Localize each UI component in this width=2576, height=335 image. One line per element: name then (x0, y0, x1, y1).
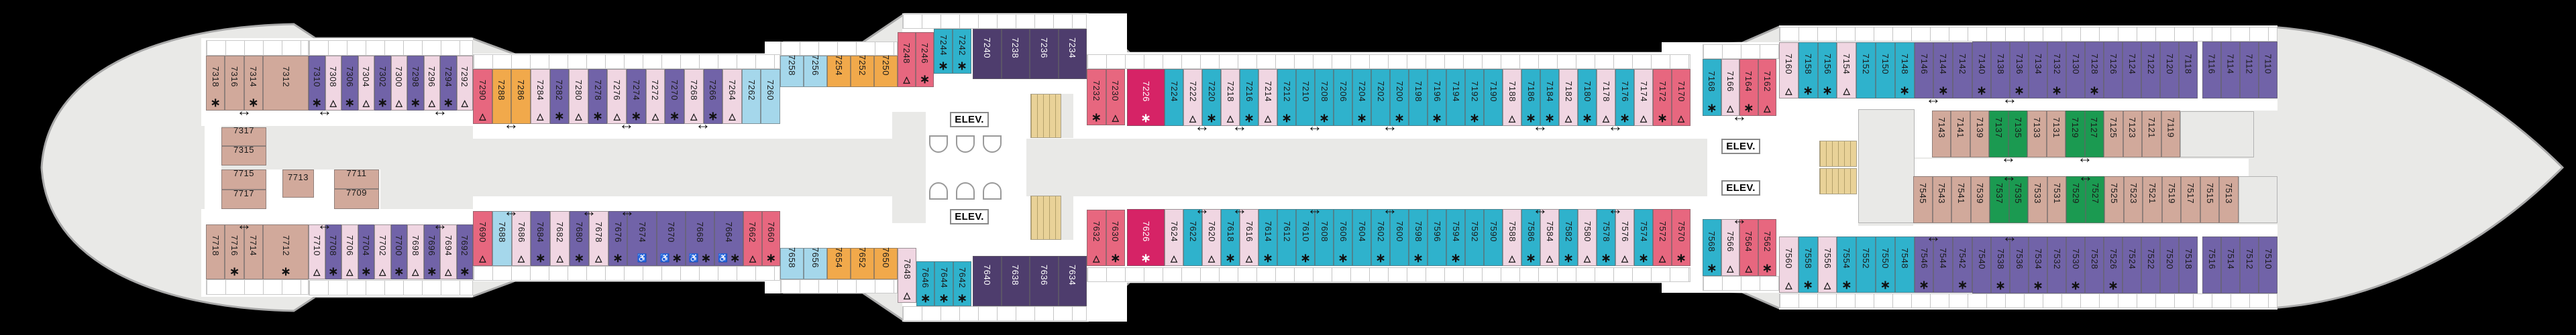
balcony-strip (309, 40, 473, 56)
cabin-number: 7668 (695, 222, 705, 243)
cabin-marks: ∗ (1522, 253, 1540, 265)
cabin-7124[interactable]: 7124 (2123, 42, 2141, 98)
cabin-marks: ∗ (1799, 279, 1817, 292)
cabin-7606[interactable]: 7606∗ (1334, 209, 1352, 266)
cabin-7638[interactable]: 7638 (1002, 256, 1030, 306)
cabin-marks: ∗ (1107, 253, 1125, 265)
cabin-marks: ♿∗ (657, 253, 685, 265)
cabin-7634[interactable]: 7634 (1059, 256, 1087, 306)
cabin-7588[interactable]: 7588△ (1503, 209, 1521, 266)
cabin-7522[interactable]: 7522 (2141, 237, 2160, 293)
cabin-7132[interactable]: 7132∗ (2047, 42, 2066, 98)
cabin-7596[interactable]: 7596 (1428, 209, 1446, 266)
cabin-7652[interactable]: 7652 (851, 248, 874, 279)
cabin-7122[interactable]: 7122 (2141, 42, 2160, 98)
connecting-rooms-arrow: ↔ (1307, 205, 1323, 213)
cabin-7682[interactable]: 7682△ (550, 211, 570, 266)
cabin-7206[interactable]: 7206 (1334, 69, 1352, 126)
cabin-7298[interactable]: 7298∗ (407, 56, 424, 111)
cabin-7141[interactable]: 7141 (1951, 111, 1970, 157)
cabin-marks (335, 196, 378, 208)
triangle-icon: △ (1746, 264, 1752, 273)
cabin-7280[interactable]: 7280△ (569, 69, 588, 124)
cabin-7524[interactable]: 7524 (2123, 237, 2141, 293)
cabin-marks: △ (375, 266, 390, 279)
triangle-icon: △ (904, 75, 910, 84)
cabin-7182[interactable]: 7182△ (1559, 69, 1578, 126)
cabin-7690[interactable]: 7690△ (473, 211, 492, 266)
cabin-number: 7524 (2127, 249, 2137, 269)
cabin-marks (283, 184, 313, 197)
cabin-marks: ∗ (264, 266, 308, 279)
cabin-7552[interactable]: 7552 (1856, 237, 1876, 293)
cabin-7660[interactable]: 7660∗ (762, 211, 780, 266)
cabin-number: 7680 (574, 222, 584, 243)
cabin-number: 7520 (2165, 249, 2175, 269)
cabin-7612[interactable]: 7612 (1277, 209, 1296, 266)
cabin-marks: ∗ (1128, 113, 1164, 125)
cabin-7317[interactable]: 7317 (221, 127, 266, 146)
cabin-7630[interactable]: 7630∗ (1106, 210, 1126, 266)
cabin-7194[interactable]: 7194 (1446, 69, 1465, 126)
cabin-marks: ∗ (531, 253, 549, 265)
cabin-7110[interactable]: 7110 (2259, 42, 2277, 98)
cabin-7123[interactable]: 7123 (2123, 111, 2142, 157)
cabin-7172[interactable]: 7172∗ (1653, 69, 1672, 126)
cabin-7656[interactable]: 7656 (804, 248, 827, 279)
cabin-number: 7510 (2263, 249, 2273, 269)
cabin-7519[interactable]: 7519 (2162, 176, 2182, 223)
cabin-marks (2203, 280, 2220, 293)
cabin-7540[interactable]: 7540 (1972, 237, 1991, 293)
cabin-7232[interactable]: 7232∗ (1087, 69, 1106, 125)
cabin-number: 7182 (1564, 81, 1574, 102)
cabin-7526[interactable]: 7526∗ (2104, 237, 2123, 293)
cabin-number: 7129 (2070, 117, 2080, 138)
cabin-7252[interactable]: 7252 (851, 56, 874, 87)
elevator-car-icon (929, 182, 948, 200)
cabin-7642[interactable]: 7642∗ (953, 261, 971, 306)
cabin-7692[interactable]: 7692∗ (457, 224, 474, 279)
cabin-7230[interactable]: 7230△ (1106, 69, 1126, 125)
cabin-number: 7716 (229, 235, 239, 256)
cabin-marks (1952, 210, 1970, 222)
cabin-7658[interactable]: 7658 (780, 248, 804, 279)
cabin-7256[interactable]: 7256 (804, 56, 827, 87)
cabin-7718[interactable]: 7718 (206, 224, 225, 279)
cabin-number: 7240 (982, 38, 992, 58)
cabin-7282[interactable]: 7282∗ (550, 69, 570, 124)
cabin-7654[interactable]: 7654 (827, 248, 851, 279)
balcony-strip (473, 266, 780, 281)
cabin-7116[interactable]: 7116 (2202, 42, 2221, 98)
cabin-7174[interactable]: 7174△ (1634, 69, 1653, 126)
cabin-7521[interactable]: 7521 (2143, 176, 2162, 223)
cabin-7518[interactable]: 7518 (2179, 237, 2198, 293)
cabin-7542[interactable]: 7542∗ (1953, 237, 1972, 293)
cabin-7246[interactable]: 7246∗ (916, 32, 934, 87)
cabin-7150[interactable]: 7150 (1876, 42, 1895, 98)
star-icon: ∗ (612, 255, 623, 261)
cabin-7556[interactable]: 7556△ (1818, 237, 1837, 293)
connecting-rooms-arrow: ↔ (620, 207, 635, 215)
cabin-7224[interactable]: 7224 (1165, 69, 1183, 126)
cabin-marks (1165, 113, 1183, 125)
cabin-marks (2162, 144, 2180, 157)
cabin-7582[interactable]: 7582∗ (1559, 209, 1578, 266)
cabin-7190[interactable]: 7190 (1484, 69, 1503, 126)
cabin-7128[interactable]: 7128∗ (2085, 42, 2104, 98)
cabin-number: 7516 (2207, 249, 2217, 269)
cabin-7272[interactable]: 7272△ (646, 69, 665, 124)
cabin-7156[interactable]: 7156∗ (1818, 42, 1837, 98)
cabin-7315[interactable]: 7315 (221, 146, 266, 165)
cabin-number: 7202 (1376, 81, 1386, 102)
cabin-number: 7254 (834, 55, 844, 76)
cabin-7545[interactable]: 7545 (1913, 176, 1933, 223)
cabin-7528[interactable]: 7528 (2085, 237, 2104, 293)
corridor-area (205, 126, 221, 209)
cabin-7112[interactable]: 7112 (2240, 42, 2259, 98)
star-icon: ∗ (535, 255, 545, 261)
cabin-7626[interactable]: 7626∗ (1127, 209, 1165, 266)
cabin-7292[interactable]: 7292△ (457, 56, 474, 111)
cabin-7160[interactable]: 7160△ (1779, 42, 1799, 98)
cabin-7570[interactable]: 7570∗ (1672, 209, 1690, 266)
cabin-number: 7658 (787, 247, 797, 268)
cabin-7670[interactable]: 7670♿∗ (657, 211, 686, 266)
star-icon: ∗ (766, 255, 776, 261)
triangle-icon: △ (518, 254, 525, 263)
cabin-7664[interactable]: 7664♿∗ (714, 211, 743, 266)
cabin-marks (1184, 253, 1201, 265)
cabin-number: 7513 (2224, 183, 2234, 204)
cabin-number: 7274 (631, 80, 641, 100)
cabin-number: 7262 (747, 80, 757, 100)
cabin-7640[interactable]: 7640 (973, 256, 1002, 306)
cabin-7543[interactable]: 7543 (1933, 176, 1952, 223)
cabin-7214[interactable]: 7214△ (1258, 69, 1277, 126)
cabin-number: 7116 (2207, 54, 2217, 74)
cabin-7170[interactable]: 7170△ (1672, 69, 1690, 126)
cabin-7248[interactable]: 7248△ (898, 32, 916, 87)
cabin-7646[interactable]: 7646∗ (916, 261, 934, 306)
cabin-7533[interactable]: 7533 (2028, 176, 2047, 223)
balcony-strip (1087, 267, 1690, 282)
cabin-7510[interactable]: 7510 (2259, 237, 2277, 293)
cabin-7196[interactable]: 7196∗ (1428, 69, 1446, 126)
cabin-number: 7300 (394, 66, 404, 87)
triangle-icon: △ (1727, 264, 1733, 273)
cabin-7260[interactable]: 7260 (761, 69, 780, 124)
cabin-7541[interactable]: 7541 (1951, 176, 1971, 223)
balcony-strip (206, 40, 309, 56)
cabin-7242[interactable]: 7242∗ (953, 29, 971, 74)
cabin-7238[interactable]: 7238 (1002, 29, 1030, 79)
cabin-number: 7306 (345, 66, 355, 87)
cabin-7226[interactable]: 7226∗ (1127, 69, 1165, 126)
cabin-7133[interactable]: 7133 (2027, 111, 2046, 157)
cabin-number: 7713 (288, 172, 309, 182)
star-icon: ∗ (920, 295, 930, 301)
cabin-7154[interactable]: 7154△ (1837, 42, 1856, 98)
cabin-7212[interactable]: 7212∗ (1277, 69, 1296, 126)
cabin-7139[interactable]: 7139 (1970, 111, 1989, 157)
cabin-7143[interactable]: 7143 (1932, 111, 1951, 157)
cabin-marks (2086, 280, 2103, 293)
cabin-marks (1485, 253, 1502, 265)
cabin-7594[interactable]: 7594∗ (1446, 209, 1465, 266)
cabin-number: 7600 (1395, 221, 1405, 242)
cabin-marks (1933, 144, 1950, 157)
cabin-7514[interactable]: 7514 (2221, 237, 2240, 293)
cabin-7284[interactable]: 7284△ (531, 69, 550, 124)
cabin-marks: ∗ (425, 266, 440, 279)
cabin-number: 7132 (2052, 54, 2062, 74)
cabin-number: 7288 (496, 80, 506, 100)
cabin-number: 7156 (1822, 54, 1832, 74)
cabin-7513[interactable]: 7513 (2219, 176, 2239, 223)
balcony-strip (1779, 293, 2277, 308)
cabin-7648[interactable]: 7648△ (898, 248, 916, 303)
cabin-7158[interactable]: 7158∗ (1799, 42, 1818, 98)
cabin-7644[interactable]: 7644∗ (934, 261, 953, 306)
cabin-7270[interactable]: 7270∗ (665, 69, 684, 124)
connecting-rooms-arrow: ↔ (317, 107, 333, 115)
triangle-icon: △ (363, 98, 370, 107)
triangle-icon: △ (412, 267, 419, 276)
cabin-7258[interactable]: 7258 (780, 56, 804, 87)
cabin-7290[interactable]: 7290△ (473, 69, 492, 124)
cabin-marks: △ (723, 111, 741, 123)
cabin-7306[interactable]: 7306∗ (341, 56, 358, 111)
cabin-7180[interactable]: 7180∗ (1578, 69, 1597, 126)
cabin-7192[interactable]: 7192∗ (1465, 69, 1484, 126)
cabin-number: 7188 (1507, 81, 1517, 102)
cabin-number: 7162 (1762, 71, 1772, 92)
cabin-7120[interactable]: 7120 (2160, 42, 2179, 98)
cabin-7530[interactable]: 7530∗ (2066, 237, 2085, 293)
cabin-number: 7642 (957, 267, 967, 288)
cabin-7717[interactable]: 7717 (221, 190, 266, 209)
cabin-7198[interactable]: 7198 (1409, 69, 1428, 126)
cabin-7134[interactable]: 7134 (2029, 42, 2047, 98)
cabin-number: 7654 (834, 247, 844, 268)
cabin-number: 7220 (1207, 81, 1217, 102)
cabin-7698[interactable]: 7698△ (407, 224, 424, 279)
cabin-7532[interactable]: 7532 (2047, 237, 2066, 293)
cabin-number: 7620 (1207, 221, 1217, 242)
cabin-7148[interactable]: 7148∗ (1895, 42, 1915, 98)
cabin-7525[interactable]: 7525 (2104, 176, 2124, 223)
cabin-7118[interactable]: 7118 (2179, 42, 2198, 98)
cabin-number: 7552 (1861, 248, 1871, 269)
cabin-marks (207, 266, 224, 279)
cabin-marks: ∗ (1428, 113, 1446, 125)
cabin-number: 7612 (1282, 221, 1292, 242)
cabin-marks (2010, 280, 2028, 293)
cabin-number: 7310 (312, 66, 322, 87)
cabin-7548[interactable]: 7548 (1895, 237, 1915, 293)
star-icon: ∗ (938, 295, 949, 301)
cabin-7121[interactable]: 7121 (2142, 111, 2161, 157)
cabin-number: 7264 (727, 80, 737, 100)
cabin-7712[interactable]: 7712∗ (263, 224, 309, 279)
cabin-7700[interactable]: 7700∗ (391, 224, 408, 279)
cabin-marks: ∗ (1896, 85, 1914, 98)
cabin-7614[interactable]: 7614∗ (1258, 209, 1277, 266)
cabin-7562[interactable]: 7562∗ (1758, 219, 1777, 276)
cabin-7704[interactable]: 7704∗ (358, 224, 375, 279)
cabin-7119[interactable]: 7119 (2161, 111, 2180, 157)
cabin-7592[interactable]: 7592 (1465, 209, 1484, 266)
star-icon: ∗ (1900, 87, 1910, 94)
cabin-number: 7176 (1620, 81, 1630, 102)
cabin-7568[interactable]: 7568∗ (1703, 219, 1721, 276)
cabin-7598[interactable]: 7598∗ (1409, 209, 1428, 266)
cabin-7713[interactable]: 7713 (282, 170, 314, 198)
cabin-7142[interactable]: 7142 (1953, 42, 1972, 98)
cabin-7706[interactable]: 7706△ (341, 224, 358, 279)
cabin-7715[interactable]: 7715 (221, 170, 266, 190)
cabin-7558[interactable]: 7558∗ (1799, 237, 1818, 293)
triangle-icon: △ (537, 112, 543, 121)
cabin-marks: ∗ (326, 266, 341, 279)
cabin-7560[interactable]: 7560△ (1779, 237, 1799, 293)
cabin-number: 7250 (881, 55, 891, 76)
cabin-7130[interactable]: 7130 (2066, 42, 2085, 98)
cabin-marks (1334, 113, 1352, 125)
cabin-7278[interactable]: 7278∗ (588, 69, 608, 124)
cabin-7240[interactable]: 7240 (973, 29, 1002, 79)
cabin-number: 7634 (1067, 265, 1077, 285)
cabin-7302[interactable]: 7302∗ (374, 56, 391, 111)
cabin-7516[interactable]: 7516 (2202, 237, 2221, 293)
cabin-7168[interactable]: 7168∗ (1703, 59, 1721, 116)
cabin-7590[interactable]: 7590 (1484, 209, 1503, 266)
cabin-7304[interactable]: 7304△ (358, 56, 375, 111)
cabin-marks (1059, 66, 1087, 78)
cabin-marks: ∗ (916, 74, 933, 86)
cabin-7711[interactable]: 7711 (334, 170, 379, 189)
cabin-7624[interactable]: 7624△ (1165, 209, 1183, 266)
cabin-7512[interactable]: 7512 (2240, 237, 2259, 293)
cabin-7114[interactable]: 7114 (2221, 42, 2240, 98)
cabin-7204[interactable]: 7204∗ (1352, 69, 1371, 126)
cabin-marks: △ (647, 111, 665, 123)
cabin-7632[interactable]: 7632△ (1087, 210, 1106, 266)
cabin-7262[interactable]: 7262 (742, 69, 761, 124)
cabin-number: 7614 (1263, 221, 1273, 242)
cabin-7162[interactable]: 7162△ (1758, 59, 1777, 116)
cabin-7312[interactable]: 7312 (263, 56, 309, 111)
cabin-marks: ∗ (342, 97, 358, 110)
connecting-rooms-arrow: ↔ (1195, 122, 1210, 130)
cabin-7684[interactable]: 7684∗ (531, 211, 550, 266)
elevator-car-icon (956, 182, 975, 200)
cabin-number: 7312 (280, 66, 290, 87)
cabin-7534[interactable]: 7534∗ (2029, 237, 2047, 293)
cabin-7554[interactable]: 7554∗ (1837, 237, 1856, 293)
cabin-marks: △ (1759, 103, 1776, 115)
cabin-number: 7698 (411, 235, 421, 256)
cabin-number: 7519 (2167, 183, 2177, 204)
cabin-7520[interactable]: 7520 (2160, 237, 2179, 293)
cabin-marks: ∗ (1578, 113, 1596, 125)
star-icon: ∗ (1995, 282, 2005, 289)
cabin-number: 7624 (1169, 221, 1179, 242)
balcony-strip (473, 54, 780, 69)
cabin-7650[interactable]: 7650 (874, 248, 898, 279)
cabin-7517[interactable]: 7517 (2181, 176, 2200, 223)
cabin-number: 7260 (765, 80, 775, 100)
triangle-icon: △ (313, 267, 320, 276)
cabin-marks (1973, 280, 1990, 293)
cabin-7604[interactable]: 7604 (1352, 209, 1371, 266)
cabin-7523[interactable]: 7523 (2124, 176, 2143, 223)
cabin-number: 7690 (478, 222, 488, 243)
cabin-marks: ∗ (1409, 253, 1427, 265)
cabin-7515[interactable]: 7515 (2200, 176, 2220, 223)
cabin-7236[interactable]: 7236 (1030, 29, 1059, 79)
cabin-marks (2241, 280, 2258, 293)
cabin-7244[interactable]: 7244∗ (934, 29, 953, 74)
cabin-7125[interactable]: 7125 (2104, 111, 2123, 157)
cabin-number: 7170 (1676, 81, 1686, 102)
cabin-number: 7662 (747, 222, 757, 243)
cabin-number: 7512 (2245, 249, 2255, 269)
cabin-7254[interactable]: 7254 (827, 56, 851, 87)
cabin-7264[interactable]: 7264△ (722, 69, 742, 124)
connecting-rooms-arrow: ↔ (1307, 122, 1323, 130)
cabin-7636[interactable]: 7636 (1030, 256, 1059, 306)
cabin-number: 7168 (1707, 71, 1717, 92)
wall-block (1061, 94, 1073, 138)
cabin-7131[interactable]: 7131 (2047, 111, 2065, 157)
cabin-marks (1278, 253, 1295, 265)
triangle-icon: △ (346, 267, 353, 276)
cabin-marks: ∗ (551, 111, 569, 123)
cabin-7539[interactable]: 7539 (1971, 176, 1990, 223)
cabin-number: 7632 (1091, 221, 1102, 242)
connecting-rooms-arrow: ↔ (433, 220, 448, 228)
cabin-number: 7700 (394, 235, 404, 256)
cabin-7152[interactable]: 7152 (1856, 42, 1876, 98)
cabin-7668[interactable]: 7668♿∗ (686, 211, 714, 266)
cabin-7709[interactable]: 7709 (334, 189, 379, 209)
cabin-7318[interactable]: 7318∗ (206, 56, 225, 111)
cabin-marks: ∗ (589, 111, 607, 123)
cabin-7234[interactable]: 7234 (1059, 29, 1087, 79)
cabin-7580[interactable]: 7580△ (1578, 209, 1597, 266)
cabin-marks (493, 253, 511, 265)
triangle-icon: △ (557, 254, 563, 263)
cabin-marks (2048, 280, 2065, 293)
cabin-7140[interactable]: 7140∗ (1972, 42, 1991, 98)
cabin-7300[interactable]: 7300△ (391, 56, 408, 111)
cabin-7250[interactable]: 7250 (874, 56, 898, 87)
cabin-7531[interactable]: 7531 (2047, 176, 2067, 223)
cabin-7572[interactable]: 7572△ (1653, 209, 1672, 266)
cabin-7702[interactable]: 7702△ (374, 224, 391, 279)
cabin-7574[interactable]: 7574∗ (1634, 209, 1653, 266)
cabin-7188[interactable]: 7188△ (1503, 69, 1521, 126)
cabin-7662[interactable]: 7662△ (743, 211, 761, 266)
cabin-number: 7594 (1451, 221, 1461, 242)
cabin-7126[interactable]: 7126 (2104, 42, 2123, 98)
cabin-7550[interactable]: 7550∗ (1876, 237, 1895, 293)
cabin-number: 7236 (1039, 38, 1049, 58)
